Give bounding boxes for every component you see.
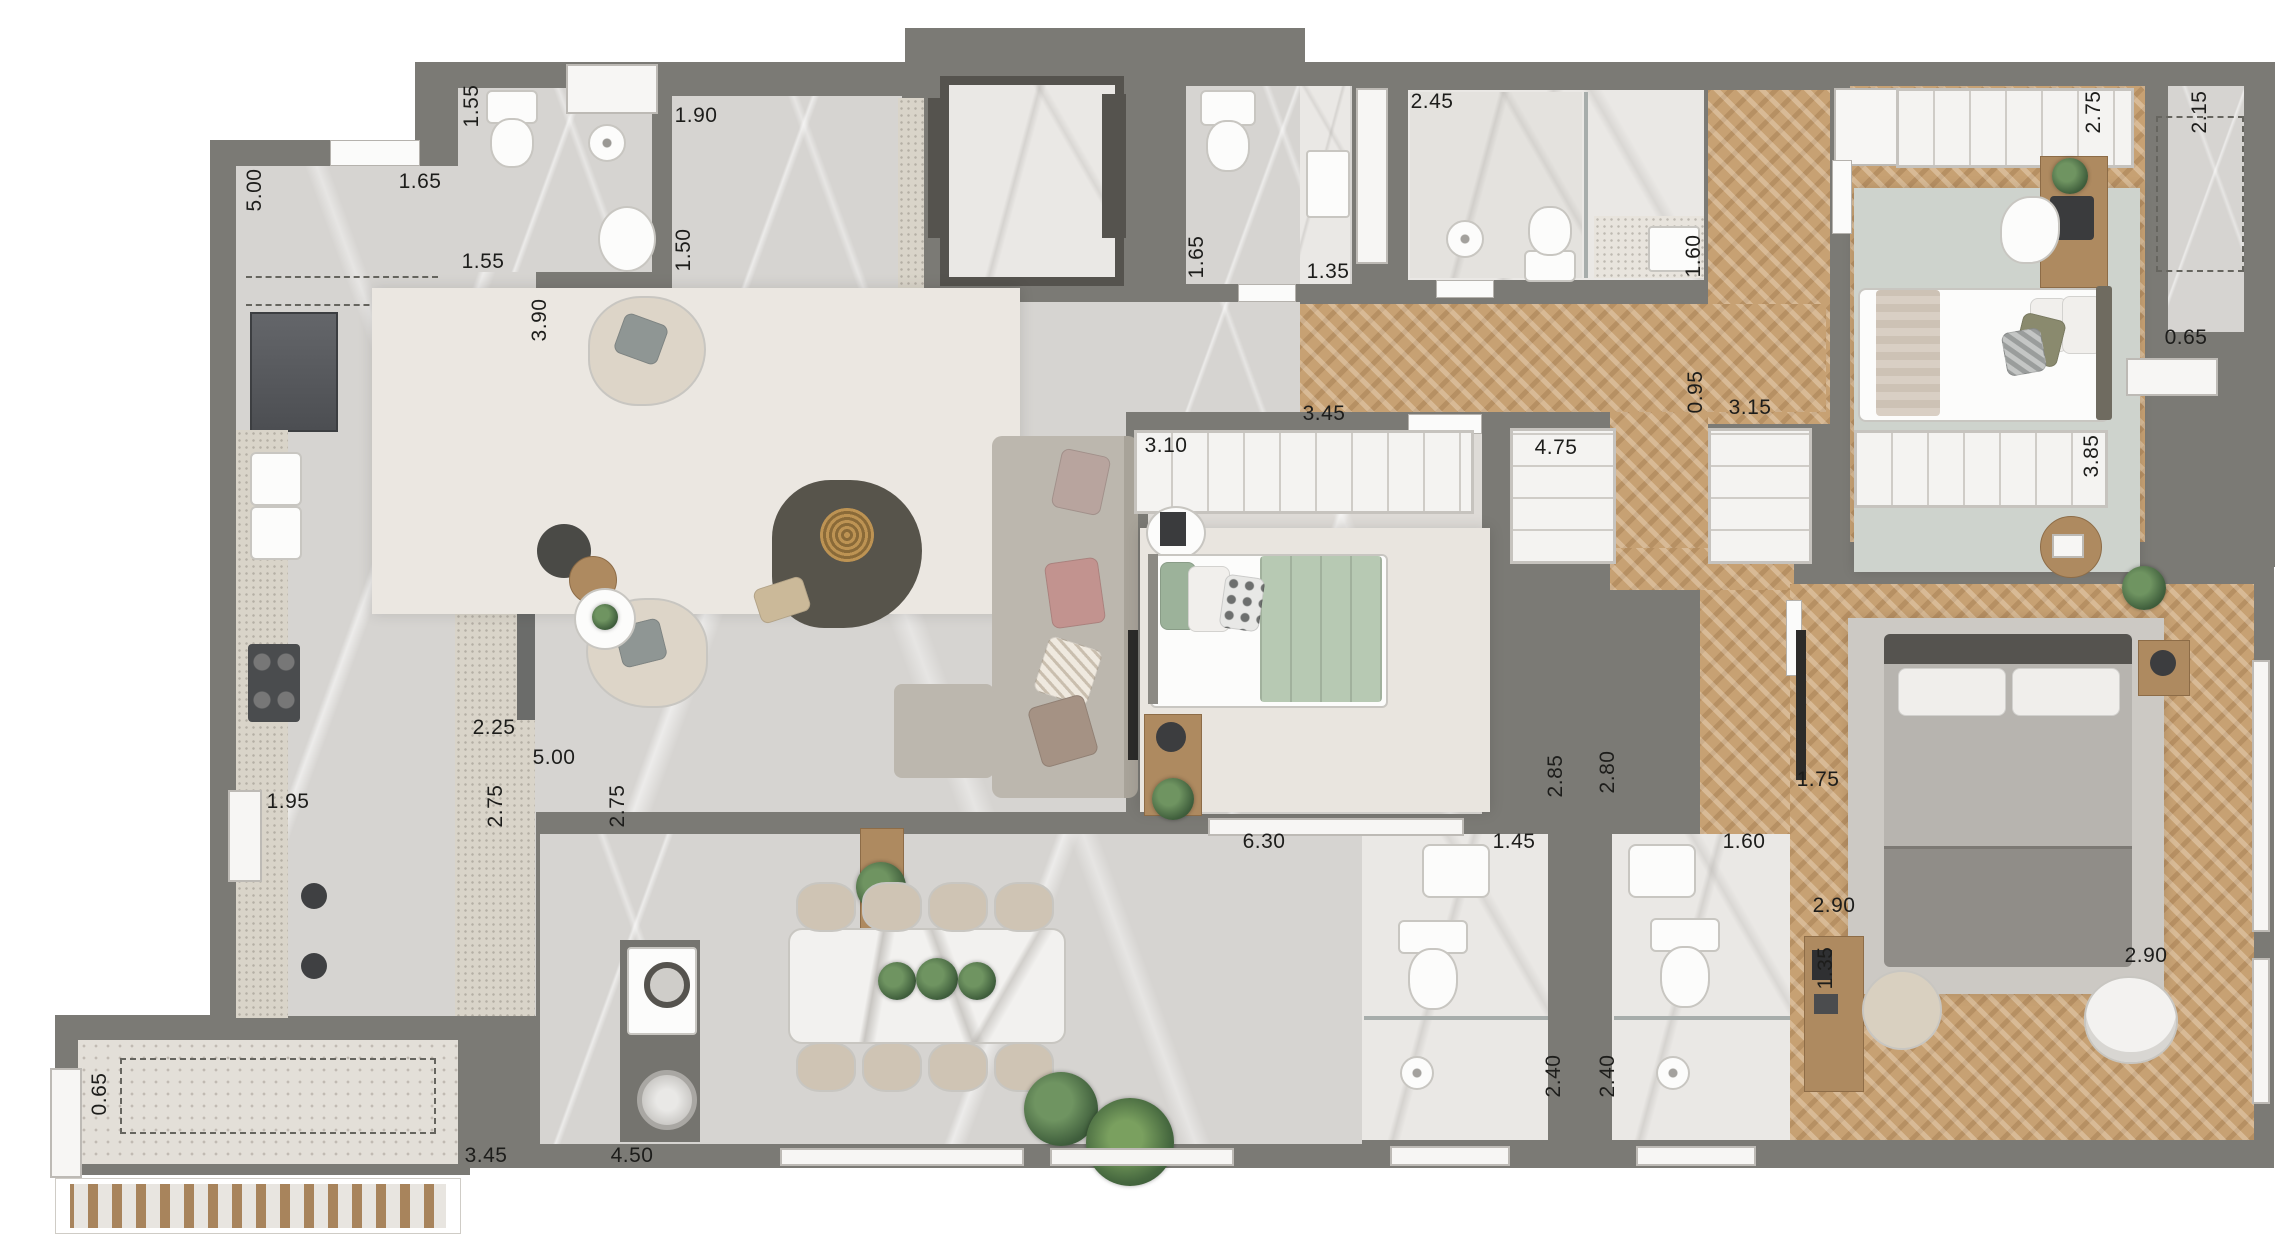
dimension-label: 2.45 — [1411, 90, 1454, 114]
dimension-label: 1.45 — [1493, 830, 1536, 854]
dimension-label: 5.00 — [533, 746, 576, 770]
dimension-label: 2.80 — [1596, 751, 1620, 794]
dimension-label: 0.65 — [88, 1073, 112, 1116]
dimension-label: 3.45 — [465, 1144, 508, 1168]
dimension-label: 3.15 — [1729, 396, 1772, 420]
dimension-label: 1.55 — [460, 85, 484, 128]
dimension-label: 3.85 — [2080, 435, 2104, 478]
dimension-label: 1.60 — [1723, 830, 1766, 854]
dimension-label: 5.00 — [243, 169, 267, 212]
dimension-label: 1.50 — [672, 229, 696, 272]
dimension-label: 2.90 — [2125, 944, 2168, 968]
dimension-label: 2.40 — [1542, 1055, 1566, 1098]
dimension-label: 1.95 — [267, 790, 310, 814]
dimension-label: 1.35 — [1814, 947, 1838, 990]
dimension-label: 0.65 — [2165, 326, 2208, 350]
dimension-label: 3.10 — [1145, 434, 1188, 458]
dimension-label: 2.40 — [1596, 1055, 1620, 1098]
dimension-label: 4.50 — [611, 1144, 654, 1168]
dimension-label: 2.75 — [2082, 91, 2106, 134]
dimension-label: 2.75 — [606, 785, 630, 828]
dimension-label: 1.35 — [1307, 260, 1350, 284]
dimension-label: 1.90 — [675, 104, 718, 128]
dimension-label: 1.65 — [399, 170, 442, 194]
dimension-label: 2.15 — [2188, 91, 2212, 134]
dimension-label: 1.60 — [1682, 235, 1706, 278]
dimension-label: 2.85 — [1544, 755, 1568, 798]
dimension-label: 0.95 — [1684, 371, 1708, 414]
dimension-label: 4.75 — [1535, 436, 1578, 460]
dimension-label: 2.90 — [1813, 894, 1856, 918]
dimension-label: 1.75 — [1797, 768, 1840, 792]
floor-plan: 5.001.651.551.553.901.901.501.651.352.45… — [0, 0, 2280, 1257]
dimension-label: 2.25 — [473, 716, 516, 740]
dimension-label: 6.30 — [1243, 830, 1286, 854]
dimension-label: 3.90 — [528, 299, 552, 342]
dimension-label: 1.55 — [462, 250, 505, 274]
dimension-label: 1.65 — [1185, 236, 1209, 279]
dimension-label: 3.45 — [1303, 402, 1346, 426]
dimension-label: 2.75 — [484, 785, 508, 828]
dimension-labels-layer: 5.001.651.551.553.901.901.501.651.352.45… — [0, 0, 2280, 1257]
